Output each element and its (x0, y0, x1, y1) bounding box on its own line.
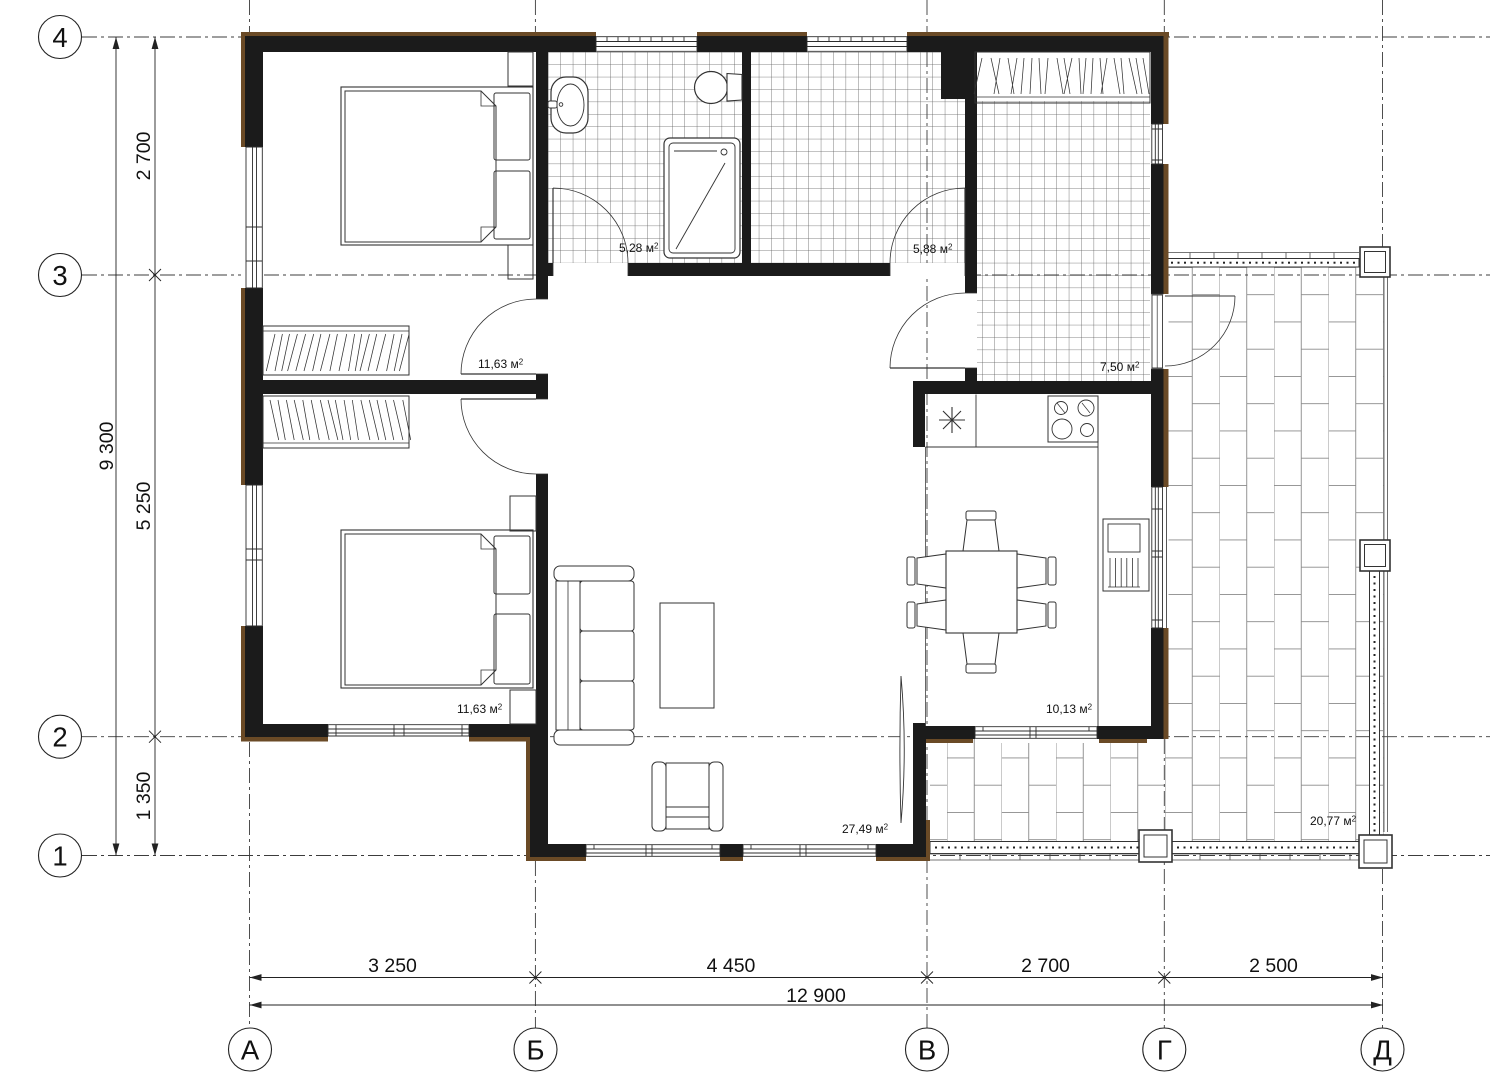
svg-text:А: А (241, 1034, 260, 1065)
svg-text:2 700: 2 700 (1021, 955, 1070, 977)
svg-text:2 700: 2 700 (133, 131, 155, 180)
svg-text:4 450: 4 450 (707, 955, 756, 977)
svg-text:7,50 м2: 7,50 м2 (1100, 360, 1140, 374)
svg-text:Д: Д (1373, 1034, 1392, 1065)
svg-text:4: 4 (52, 22, 67, 53)
svg-text:2: 2 (52, 722, 67, 753)
svg-text:Г: Г (1157, 1034, 1172, 1065)
svg-text:5,88 м2: 5,88 м2 (913, 242, 953, 256)
svg-text:1 350: 1 350 (133, 771, 155, 820)
svg-text:3 250: 3 250 (368, 955, 417, 977)
svg-text:27,49 м2: 27,49 м2 (842, 822, 889, 836)
svg-text:Б: Б (526, 1034, 544, 1065)
svg-text:12 900: 12 900 (786, 985, 846, 1007)
svg-text:9 300: 9 300 (96, 421, 118, 470)
svg-text:10,13 м2: 10,13 м2 (1046, 702, 1093, 716)
svg-text:11,63 м2: 11,63 м2 (457, 702, 503, 716)
svg-text:В: В (918, 1034, 936, 1065)
svg-text:5,28 м2: 5,28 м2 (619, 241, 659, 255)
svg-text:1: 1 (52, 840, 67, 871)
svg-text:5 250: 5 250 (133, 481, 155, 530)
svg-text:20,77 м2: 20,77 м2 (1310, 814, 1357, 828)
svg-text:2 500: 2 500 (1249, 955, 1298, 977)
svg-text:3: 3 (52, 260, 67, 291)
svg-text:11,63 м2: 11,63 м2 (478, 357, 524, 371)
